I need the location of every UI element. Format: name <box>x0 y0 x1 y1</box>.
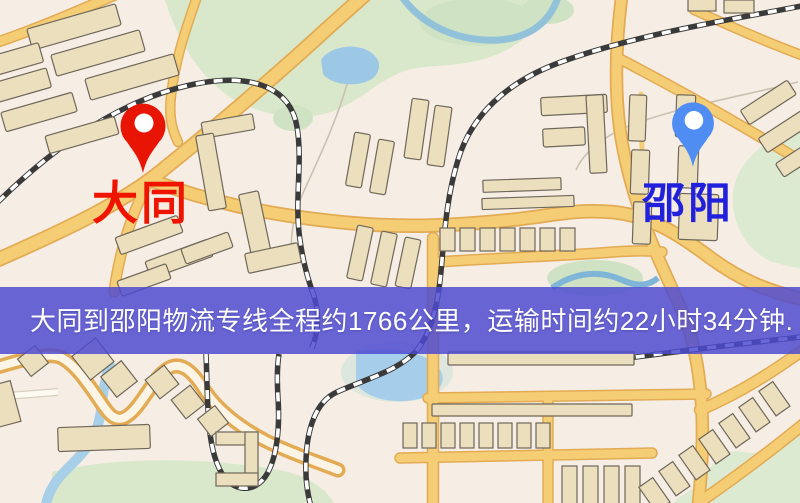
origin-label: 大同 <box>92 177 190 229</box>
info-banner-text: 大同到邵阳物流专线全程约1766公里，运输时间约22小时34分钟. <box>0 308 793 334</box>
map-graphic: 大同 邵阳 <box>0 0 800 503</box>
map-canvas[interactable]: 大同 邵阳 大同到邵阳物流专线全程约1766公里，运输时间约22小时34分钟. <box>0 0 800 503</box>
pond-north <box>321 47 379 85</box>
info-banner: 大同到邵阳物流专线全程约1766公里，运输时间约22小时34分钟. <box>0 287 800 354</box>
destination-label: 邵阳 <box>641 180 734 228</box>
